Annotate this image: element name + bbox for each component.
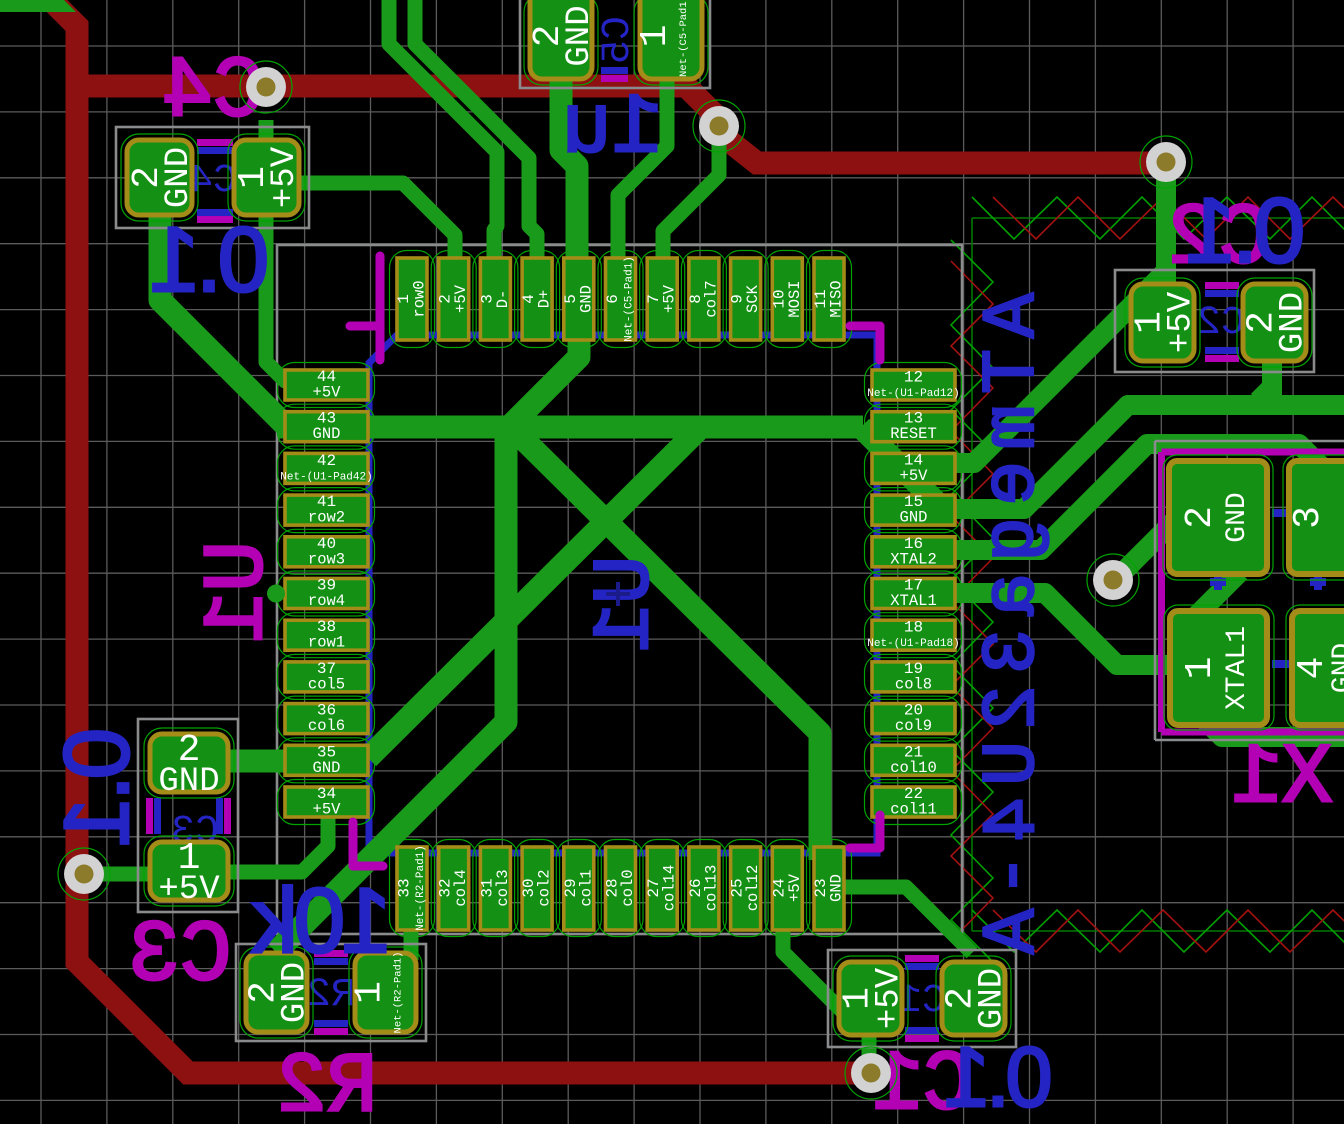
svg-text:42: 42: [317, 452, 336, 470]
svg-text:3: 3: [1287, 506, 1330, 529]
svg-text:+5V: +5V: [452, 284, 470, 313]
svg-text:XTAL2: XTAL2: [890, 550, 937, 568]
svg-text:GND: GND: [561, 5, 599, 66]
svg-text:GND: GND: [900, 509, 928, 527]
svg-text:R2: R2: [277, 1041, 378, 1124]
svg-text:col7: col7: [702, 280, 720, 317]
svg-text:+5V: +5V: [158, 871, 220, 909]
svg-text:col5: col5: [308, 675, 345, 693]
svg-text:col10: col10: [890, 759, 937, 777]
svg-text:U1: U1: [581, 556, 672, 652]
svg-text:row1: row1: [308, 634, 345, 652]
svg-text:GND: GND: [313, 759, 341, 777]
svg-text:GND: GND: [313, 425, 341, 443]
svg-text:1: 1: [349, 981, 392, 1004]
svg-text:col6: col6: [308, 717, 345, 735]
svg-text:U1: U1: [190, 541, 287, 643]
svg-text:Net-(C5-Pad1): Net-(C5-Pad1): [624, 256, 636, 342]
svg-text:SCK: SCK: [744, 284, 762, 313]
svg-text:Net-(U1-Pad42): Net-(U1-Pad42): [280, 471, 372, 483]
svg-text:col12: col12: [744, 865, 762, 912]
svg-text:row3: row3: [308, 550, 345, 568]
svg-text:+5V: +5V: [900, 467, 929, 485]
svg-text:6: 6: [604, 294, 622, 304]
svg-text:col1: col1: [577, 869, 595, 906]
svg-text:GND: GND: [1328, 643, 1344, 693]
svg-text:D-: D-: [494, 290, 512, 309]
svg-text:D+: D+: [536, 290, 554, 309]
svg-text:GND: GND: [828, 874, 846, 902]
svg-text:10k: 10k: [251, 870, 392, 972]
svg-text:col2: col2: [536, 869, 554, 906]
svg-text:+5V: +5V: [786, 873, 804, 902]
svg-text:GND: GND: [160, 147, 198, 208]
svg-text:C3: C3: [128, 907, 231, 1005]
svg-text:0.1: 0.1: [153, 209, 269, 311]
svg-text:X1: X1: [1232, 732, 1333, 827]
svg-text:GND: GND: [974, 968, 1012, 1029]
svg-text:XTAL1: XTAL1: [1222, 626, 1253, 710]
svg-text:+5V: +5V: [871, 967, 909, 1029]
svg-text:+5V: +5V: [313, 801, 342, 819]
svg-text:col0: col0: [619, 869, 637, 906]
svg-text:col9: col9: [895, 717, 932, 735]
svg-text:+5V: +5V: [661, 284, 679, 313]
svg-text:GND: GND: [577, 285, 595, 313]
svg-text:+5V: +5V: [266, 146, 304, 208]
svg-text:12: 12: [904, 369, 923, 387]
svg-text:Net-(R2-Pad1): Net-(R2-Pad1): [393, 952, 405, 1034]
svg-text:GND: GND: [158, 763, 219, 801]
svg-text:0.1: 0.1: [46, 728, 148, 844]
svg-text:C2: C2: [1197, 301, 1245, 346]
svg-text:33: 33: [396, 878, 414, 897]
svg-text:row0: row0: [411, 280, 429, 317]
svg-text:1: 1: [1179, 657, 1222, 680]
svg-text:0.1: 0.1: [947, 1030, 1052, 1124]
svg-text:col8: col8: [895, 675, 932, 693]
svg-text:Net-(U1-Pad18): Net-(U1-Pad18): [867, 638, 959, 650]
svg-text:+5V: +5V: [1163, 291, 1201, 353]
svg-text:0.1: 0.1: [1189, 180, 1305, 282]
svg-text:1u: 1u: [562, 82, 663, 177]
svg-text:col4: col4: [452, 869, 470, 906]
svg-text:col3: col3: [494, 869, 512, 906]
svg-text:GND: GND: [1275, 292, 1313, 353]
svg-text:row2: row2: [308, 509, 345, 527]
svg-text:col14: col14: [661, 865, 679, 912]
svg-text:MOSI: MOSI: [786, 280, 804, 317]
svg-text:+5V: +5V: [313, 384, 342, 402]
svg-text:RESET: RESET: [890, 425, 937, 443]
svg-text:1: 1: [634, 25, 677, 48]
svg-text:Net-(C5-Pad1): Net-(C5-Pad1): [678, 0, 690, 77]
svg-text:2: 2: [1179, 506, 1222, 529]
svg-text:GND: GND: [1222, 492, 1253, 542]
svg-text:XTAL1: XTAL1: [890, 592, 937, 610]
svg-text:ATmega32U4-A: ATmega32U4-A: [971, 293, 1056, 965]
svg-text:MISO: MISO: [828, 280, 846, 317]
svg-text:col13: col13: [702, 865, 720, 912]
svg-text:row4: row4: [308, 592, 345, 610]
svg-text:Net-(U1-Pad12): Net-(U1-Pad12): [867, 388, 959, 400]
svg-text:18: 18: [904, 619, 923, 637]
svg-text:Net-(R2-Pad1): Net-(R2-Pad1): [415, 845, 427, 931]
svg-text:col11: col11: [890, 801, 937, 819]
